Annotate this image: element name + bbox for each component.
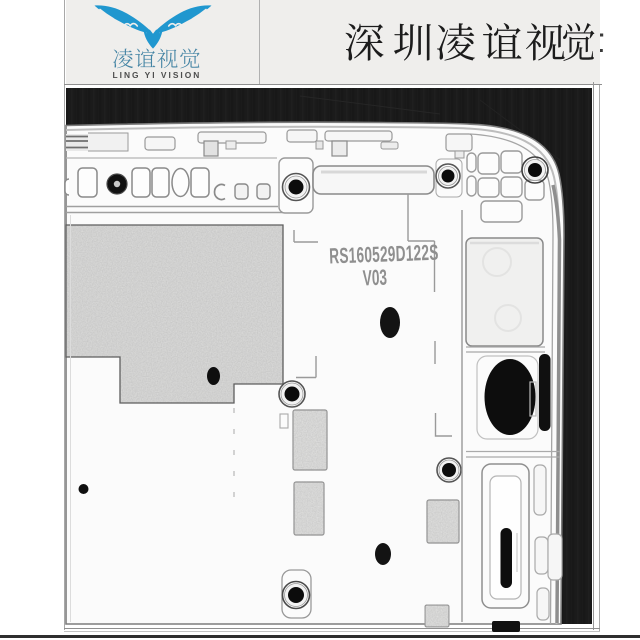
svg-text:V03: V03 — [362, 264, 387, 290]
